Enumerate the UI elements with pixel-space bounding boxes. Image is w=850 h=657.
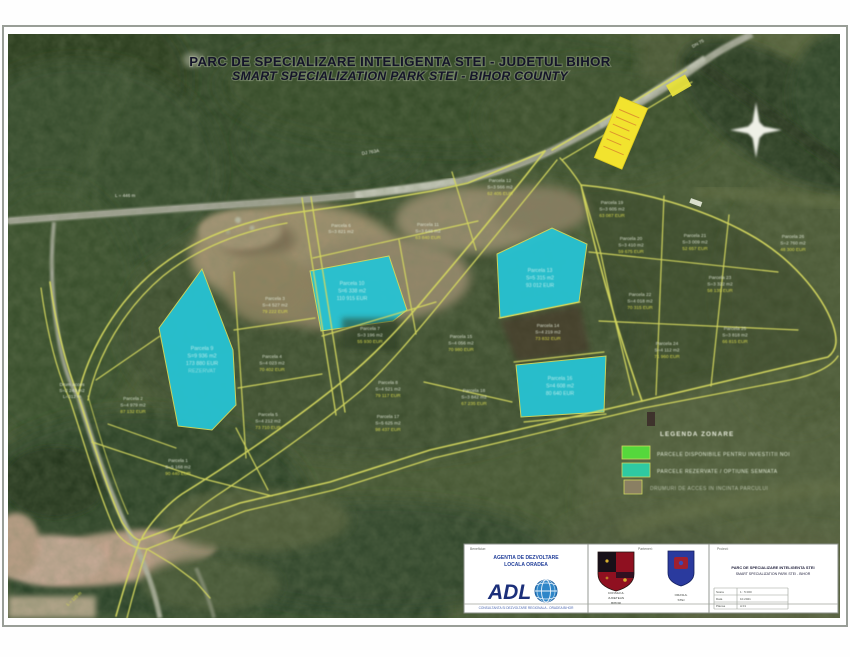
svg-text:Parcela 5S=4 212 m273 710 EUR: Parcela 5S=4 212 m273 710 EUR [255, 412, 281, 430]
svg-text:Parcela 16S=4 608 m280 640 EUR: Parcela 16S=4 608 m280 640 EUR [546, 376, 575, 397]
svg-text:AGENTIA DE DEZVOLTARE: AGENTIA DE DEZVOLTARE [493, 555, 559, 561]
svg-text:Parcela 7S=3 196 m255 930 EUR: Parcela 7S=3 196 m255 930 EUR [357, 326, 383, 344]
svg-text:Parcela 24S=4 112 m271 960 EUR: Parcela 24S=4 112 m271 960 EUR [654, 341, 680, 359]
svg-text:Parcela 10S=6 338 m2110 915 EU: Parcela 10S=6 338 m2110 915 EUR [337, 281, 368, 302]
svg-text:BIHOR: BIHOR [611, 601, 622, 605]
svg-text:Parcela 15S=4 056 m270 980 EUR: Parcela 15S=4 056 m270 980 EUR [448, 334, 474, 352]
svg-text:Parcela 8S=4 521 m279 117 EUR: Parcela 8S=4 521 m279 117 EUR [375, 380, 401, 398]
svg-text:Parcela 6S=3 821 m2: Parcela 6S=3 821 m2 [328, 223, 354, 234]
svg-text:Parcela 1S=5 168 m290 440 EUR: Parcela 1S=5 168 m290 440 EUR [165, 458, 191, 476]
svg-text:Proiect:: Proiect: [717, 547, 729, 551]
svg-text:Parcela 23S=3 322 m258 135 EUR: Parcela 23S=3 322 m258 135 EUR [707, 275, 733, 293]
svg-text:SMART SPECIALIZATION PARK STEI: SMART SPECIALIZATION PARK STEI - BIHOR [736, 572, 811, 576]
svg-text:Plansa: Plansa [716, 604, 726, 608]
svg-text:JUDETEAN: JUDETEAN [608, 596, 624, 600]
svg-text:Parcela 19S=3 605 m263 087 EUR: Parcela 19S=3 605 m263 087 EUR [599, 200, 625, 218]
svg-text:Parcela 20S=3 410 m259 675 EUR: Parcela 20S=3 410 m259 675 EUR [618, 236, 644, 254]
svg-text:STEI: STEI [678, 598, 685, 602]
svg-text:Parteneri:: Parteneri: [638, 547, 653, 551]
svg-text:Parcela 17S=5 625 m298 437 EUR: Parcela 17S=5 625 m298 437 EUR [375, 414, 401, 432]
svg-text:1 : 5 000: 1 : 5 000 [740, 590, 752, 594]
svg-text:DRUMURI DE ACCES IN INCINTA PA: DRUMURI DE ACCES IN INCINTA PARCULUI [650, 486, 768, 492]
svg-text:Parcela 12S=3 566 m262 405 EUR: Parcela 12S=3 566 m262 405 EUR [487, 178, 513, 196]
svg-text:Parcela 2S=4 979 m287 132 EUR: Parcela 2S=4 979 m287 132 EUR [120, 396, 146, 414]
svg-text:Parcela 18S=3 842 m267 235 EUR: Parcela 18S=3 842 m267 235 EUR [461, 388, 487, 406]
svg-text:CONSULTANTA SI DEZVOLTARE REGI: CONSULTANTA SI DEZVOLTARE REGIONALA - OR… [479, 606, 575, 610]
svg-text:Parcela 4S=4 023 m270 402 EUR: Parcela 4S=4 023 m270 402 EUR [259, 354, 285, 372]
svg-text:Parcela 14S=4 219 m273 832 EUR: Parcela 14S=4 219 m273 832 EUR [535, 323, 561, 341]
svg-text:LEGENDA ZONARE: LEGENDA ZONARE [660, 431, 734, 438]
svg-text:PARC DE SPECIALIZARE INTELIGEN: PARC DE SPECIALIZARE INTELIGENTA STEI [731, 565, 814, 570]
svg-text:Parcela 25S=3 818 m266 815 EUR: Parcela 25S=3 818 m266 815 EUR [722, 326, 748, 344]
svg-text:Parcela 13S=5 315 m293 012 EUR: Parcela 13S=5 315 m293 012 EUR [526, 268, 555, 289]
svg-text:ADL: ADL [487, 581, 531, 604]
svg-text:CONSILIUL: CONSILIUL [608, 591, 625, 595]
svg-text:Parcela 3S=4 527 m279 222 EUR: Parcela 3S=4 527 m279 222 EUR [262, 296, 288, 314]
svg-text:Parcela 11S=3 648 m263 840 EUR: Parcela 11S=3 648 m263 840 EUR [415, 222, 441, 240]
svg-text:PARC DE SPECIALIZARE INTELIGEN: PARC DE SPECIALIZARE INTELIGENTA STEI - … [189, 54, 611, 69]
svg-text:Beneficiar:: Beneficiar: [470, 547, 486, 551]
svg-text:PARCELE REZERVATE / OPTIUNE SE: PARCELE REZERVATE / OPTIUNE SEMNATA [657, 469, 778, 475]
svg-text:Scara: Scara [716, 590, 724, 594]
svg-text:Parcela 22S=4 018 m270 315 EUR: Parcela 22S=4 018 m270 315 EUR [627, 292, 653, 310]
svg-text:LOCALA ORADEA: LOCALA ORADEA [504, 562, 548, 568]
svg-text:PARCELE DISPONIBILE PENTRU INV: PARCELE DISPONIBILE PENTRU INVESTITII NO… [657, 452, 790, 458]
svg-text:A 01: A 01 [740, 604, 746, 608]
svg-text:Parcela 21S=3 009 m252 657 EUR: Parcela 21S=3 009 m252 657 EUR [682, 233, 708, 251]
svg-text:SMART SPECIALIZATION PARK STEI: SMART SPECIALIZATION PARK STEI - BIHOR C… [232, 69, 569, 83]
svg-text:Data: Data [716, 597, 723, 601]
svg-text:10.2021: 10.2021 [740, 597, 751, 601]
svg-text:Parcela 26S=2 760 m248 300 EUR: Parcela 26S=2 760 m248 300 EUR [780, 234, 806, 252]
svg-text:L = 446 m: L = 446 m [115, 193, 136, 198]
svg-text:ORASUL: ORASUL [675, 593, 688, 597]
